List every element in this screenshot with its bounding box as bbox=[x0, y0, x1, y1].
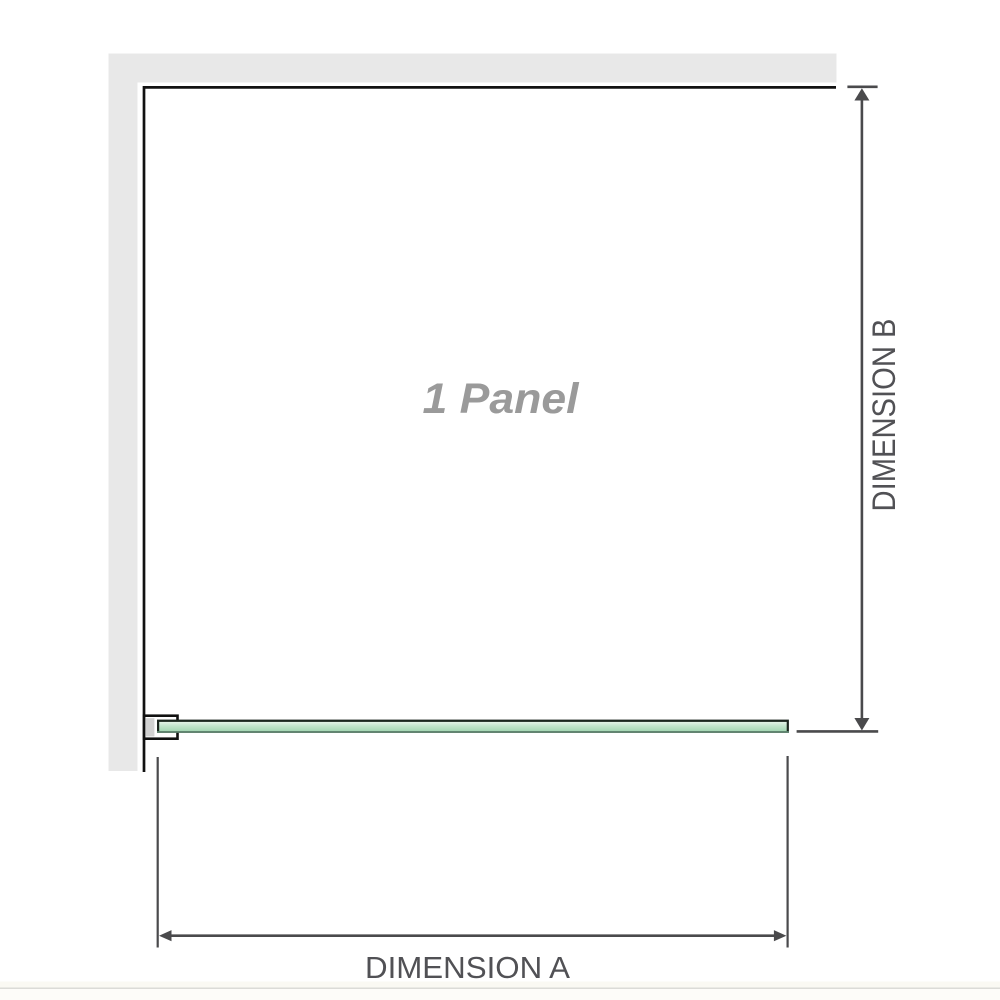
svg-text:1 Panel: 1 Panel bbox=[423, 375, 580, 423]
svg-text:DIMENSION B: DIMENSION B bbox=[866, 319, 902, 512]
svg-text:DIMENSION A: DIMENSION A bbox=[365, 950, 570, 985]
